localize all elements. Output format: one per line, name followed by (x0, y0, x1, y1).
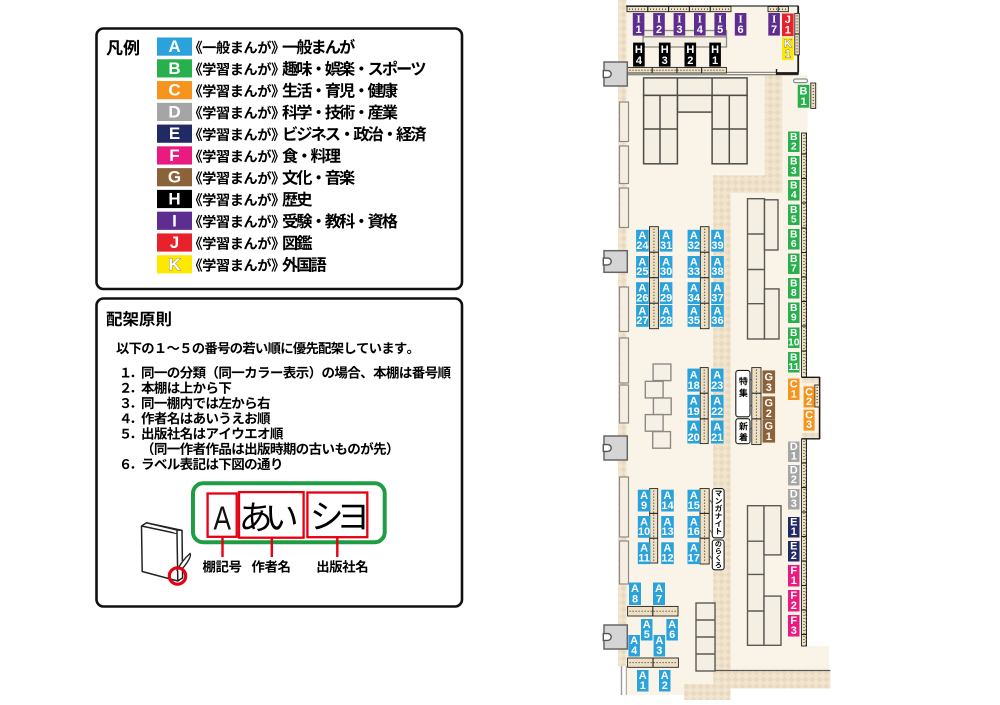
svg-text:A: A (168, 37, 180, 56)
svg-text:4: 4 (631, 645, 638, 657)
svg-text:G: G (168, 168, 181, 187)
svg-text:2: 2 (687, 55, 693, 67)
svg-text:2: 2 (656, 24, 662, 36)
svg-text:2: 2 (791, 550, 797, 562)
svg-text:23: 23 (711, 380, 723, 392)
svg-text:4: 4 (697, 24, 704, 36)
svg-text:17: 17 (688, 553, 700, 565)
svg-text:3: 3 (662, 55, 668, 67)
svg-text:7: 7 (656, 593, 662, 605)
svg-text:33: 33 (688, 266, 700, 278)
svg-text:22: 22 (711, 406, 723, 418)
svg-text:1: 1 (712, 55, 718, 67)
svg-text:4: 4 (636, 55, 643, 67)
svg-text:3: 3 (791, 625, 797, 637)
svg-text:26: 26 (636, 292, 648, 304)
svg-text:9: 9 (641, 500, 647, 512)
svg-text:15: 15 (688, 500, 700, 512)
svg-text:1: 1 (800, 96, 806, 108)
svg-text:K: K (168, 255, 181, 274)
svg-text:12: 12 (661, 553, 673, 565)
svg-text:11: 11 (638, 553, 650, 565)
svg-text:14: 14 (661, 500, 674, 512)
svg-text:E: E (169, 124, 180, 143)
svg-text:2: 2 (791, 474, 797, 486)
svg-text:27: 27 (636, 315, 648, 327)
svg-text:1: 1 (785, 49, 791, 61)
svg-text:6: 6 (738, 24, 744, 36)
svg-text:16: 16 (688, 526, 700, 538)
svg-text:38: 38 (711, 266, 723, 278)
svg-text:D: D (168, 102, 180, 121)
svg-text:10: 10 (638, 526, 650, 538)
svg-text:2: 2 (766, 408, 772, 420)
svg-text:1: 1 (791, 575, 797, 587)
svg-text:B: B (168, 59, 180, 78)
svg-text:37: 37 (711, 292, 723, 304)
svg-text:H: H (168, 190, 180, 209)
svg-text:24: 24 (636, 240, 649, 252)
svg-text:4: 4 (791, 190, 797, 201)
svg-text:C: C (168, 81, 180, 100)
svg-text:28: 28 (660, 315, 672, 327)
svg-text:2: 2 (662, 680, 668, 692)
svg-text:1: 1 (785, 25, 791, 37)
svg-text:5: 5 (791, 214, 797, 225)
svg-text:32: 32 (688, 240, 700, 252)
svg-text:8: 8 (791, 288, 797, 299)
svg-text:36: 36 (711, 315, 723, 327)
svg-text:5: 5 (717, 24, 723, 36)
svg-text:19: 19 (688, 406, 700, 418)
svg-text:2: 2 (791, 600, 797, 612)
svg-text:18: 18 (688, 380, 700, 392)
svg-text:3: 3 (791, 166, 797, 177)
svg-text:20: 20 (688, 432, 700, 444)
svg-text:1: 1 (636, 24, 642, 36)
svg-text:34: 34 (688, 292, 701, 304)
svg-text:F: F (169, 146, 179, 165)
svg-text:7: 7 (791, 263, 797, 274)
svg-text:29: 29 (660, 292, 672, 304)
svg-text:A: A (214, 500, 232, 537)
svg-text:5: 5 (644, 629, 650, 641)
svg-text:3: 3 (676, 24, 682, 36)
svg-text:I: I (172, 211, 177, 230)
svg-text:31: 31 (660, 240, 672, 252)
svg-text:10: 10 (788, 337, 800, 348)
svg-text:25: 25 (636, 266, 648, 278)
svg-text:3: 3 (806, 419, 812, 431)
svg-text:21: 21 (711, 432, 723, 444)
svg-text:11: 11 (788, 362, 799, 373)
svg-text:1: 1 (791, 450, 797, 462)
svg-text:7: 7 (771, 24, 777, 36)
svg-text:13: 13 (661, 526, 673, 538)
svg-text:1: 1 (640, 680, 646, 692)
svg-text:3: 3 (766, 382, 772, 394)
svg-text:3: 3 (656, 645, 662, 657)
svg-text:1: 1 (791, 388, 797, 400)
svg-text:3: 3 (791, 498, 797, 510)
svg-text:1: 1 (766, 431, 772, 443)
svg-text:9: 9 (791, 312, 797, 323)
svg-text:35: 35 (688, 315, 700, 327)
svg-text:2: 2 (806, 396, 812, 408)
svg-text:8: 8 (632, 593, 638, 605)
svg-text:2: 2 (791, 141, 797, 152)
svg-text:30: 30 (660, 266, 672, 278)
svg-text:J: J (170, 233, 179, 252)
svg-text:1: 1 (791, 526, 797, 538)
svg-text:6: 6 (669, 629, 675, 641)
svg-text:39: 39 (711, 240, 723, 252)
svg-text:6: 6 (791, 239, 797, 250)
